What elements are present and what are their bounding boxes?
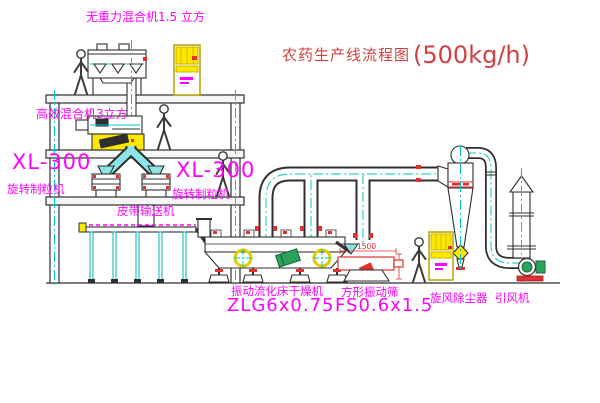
induced-draft-fan: [517, 259, 545, 282]
control-cabinet-2: [429, 232, 453, 280]
dryer-supports: [209, 268, 347, 282]
control-cabinet-1: [174, 45, 200, 95]
worker-figure-4: [413, 238, 426, 282]
title-capacity: (500kg/h): [413, 43, 530, 67]
mid-granulator-model-label: XL-300: [176, 160, 255, 181]
worker-figure-2: [158, 105, 171, 149]
belt-conveyor: [79, 223, 206, 283]
high-efficiency-mixer: [76, 116, 144, 150]
mid-granulator-name-label: 旋转制粒机: [172, 189, 230, 201]
left-granulator-model-label: XL-300: [12, 152, 91, 173]
diagram-canvas: 无重力混合机1.5 立方 农药生产线流程图 (500kg/h) 高效混合机3立方…: [0, 0, 600, 403]
mid-mixer-label: 高效混合机3立方: [36, 108, 128, 120]
screen-length-dimension: 1500: [357, 243, 376, 251]
screen-model-label: FS0.6x1.5: [335, 297, 433, 315]
diagram-title: 农药生产线流程图 (500kg/h): [282, 43, 530, 67]
vibration-motor-left: [234, 249, 252, 267]
worker-figure-1: [75, 50, 88, 94]
left-granulator-name-label: 旋转制粒机: [7, 184, 65, 196]
belt-conveyor-label: 皮带输送机: [117, 206, 175, 218]
floor-slab-top: [46, 95, 244, 103]
cyclone-label: 旋风除尘器: [430, 293, 488, 305]
dryer-model-label: ZLG6x0.75: [227, 297, 335, 315]
conveyor-legs: [90, 232, 186, 280]
fan-label: 引风机: [495, 293, 530, 305]
vibration-motor-right: [313, 249, 331, 267]
top-mixer-label: 无重力混合机1.5 立方: [86, 11, 205, 23]
title-text: 农药生产线流程图: [282, 48, 410, 67]
